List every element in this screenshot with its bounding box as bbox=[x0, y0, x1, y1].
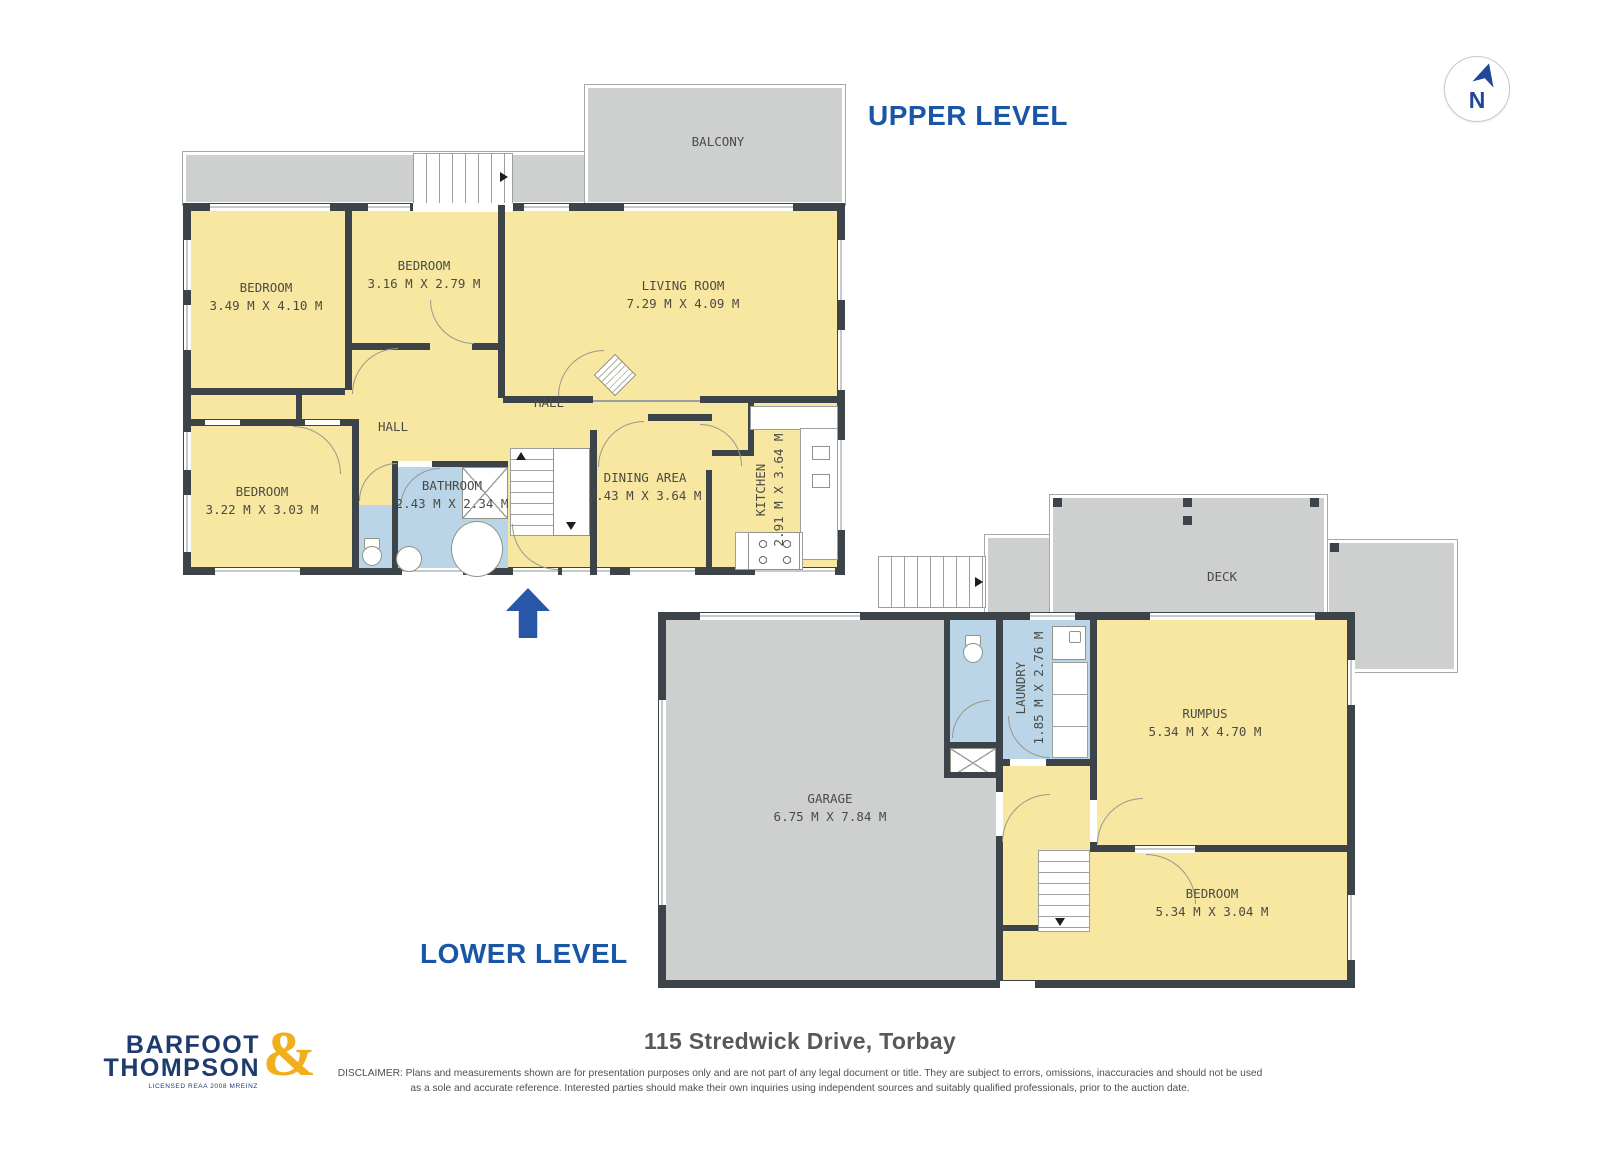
window bbox=[184, 305, 191, 350]
window bbox=[1348, 660, 1355, 705]
window bbox=[524, 204, 569, 211]
kitchen-sink bbox=[812, 446, 830, 460]
window bbox=[184, 240, 191, 290]
window bbox=[210, 204, 330, 211]
washing-machine bbox=[1052, 626, 1086, 660]
wall bbox=[944, 742, 1003, 748]
deck-post bbox=[1183, 516, 1192, 525]
door-opening bbox=[1010, 759, 1046, 766]
window bbox=[624, 204, 793, 211]
window bbox=[1030, 613, 1075, 620]
bedroom-lower-level-label: BEDROOM 5.34 M X 3.04 M bbox=[1156, 885, 1269, 921]
wall bbox=[183, 388, 345, 395]
window bbox=[838, 240, 845, 300]
wall bbox=[648, 414, 712, 421]
stairs-down-icon bbox=[1055, 918, 1065, 926]
deck-label: DECK bbox=[1207, 568, 1237, 586]
bedroom-left-label: BEDROOM 3.49 M X 4.10 M bbox=[210, 279, 323, 315]
garage-door bbox=[659, 700, 666, 905]
hall-label: HALL bbox=[534, 394, 564, 412]
lower-level-title: LOWER LEVEL bbox=[420, 938, 628, 970]
door-opening bbox=[1090, 800, 1097, 842]
entry-arrow-icon bbox=[506, 588, 550, 638]
door-opening bbox=[996, 792, 1003, 836]
hall-label: HALL bbox=[378, 418, 408, 436]
wall bbox=[996, 620, 1003, 778]
window bbox=[838, 330, 845, 390]
window bbox=[368, 204, 410, 211]
garage-label: GARAGE 6.75 M X 7.84 M bbox=[774, 790, 887, 826]
deck-stairs bbox=[878, 556, 986, 608]
deck-post bbox=[1330, 543, 1339, 552]
floorplan-page: UPPER LEVEL BALCONY bbox=[0, 0, 1600, 1167]
window bbox=[630, 568, 695, 575]
internal-stairs bbox=[510, 448, 554, 536]
window bbox=[184, 495, 191, 552]
wall bbox=[700, 396, 845, 403]
wall bbox=[498, 205, 505, 398]
closet-door bbox=[305, 420, 340, 425]
window bbox=[1348, 895, 1355, 960]
bathtub bbox=[451, 521, 503, 577]
closet-door bbox=[205, 420, 240, 425]
wall bbox=[352, 419, 359, 575]
wall bbox=[472, 343, 505, 350]
toilet bbox=[963, 635, 983, 663]
bathroom-label: BATHROOM 2.43 M X 2.34 M bbox=[396, 477, 509, 513]
kitchen-sink bbox=[812, 474, 830, 488]
wall bbox=[296, 392, 302, 422]
stairs-direction-icon bbox=[975, 577, 983, 587]
dining-label: DINING AREA 2.43 M X 3.64 M bbox=[589, 469, 702, 505]
living-room-label: LIVING ROOM 7.29 M X 4.09 M bbox=[627, 277, 740, 313]
wall bbox=[944, 772, 1003, 778]
laundry-label: LAUNDRY 1.85 M X 2.76 M bbox=[1012, 632, 1048, 745]
deck-post bbox=[1053, 498, 1062, 507]
wall bbox=[996, 925, 1040, 931]
deck-post bbox=[1183, 498, 1192, 507]
bedroom-lower-label: BEDROOM 3.22 M X 3.03 M bbox=[206, 483, 319, 519]
deck-post bbox=[1310, 498, 1319, 507]
stairs-up-icon bbox=[516, 452, 526, 460]
garage-floor bbox=[944, 778, 996, 980]
opening bbox=[1000, 981, 1035, 988]
upper-level-title: UPPER LEVEL bbox=[868, 100, 1068, 132]
balcony-label: BALCONY bbox=[692, 133, 745, 151]
stairs-down-icon bbox=[566, 522, 576, 530]
kitchen-label: KITCHEN 2.91 M X 3.64 M bbox=[752, 434, 788, 547]
toilet bbox=[362, 538, 382, 566]
disclaimer-text: DISCLAIMER: Plans and measurements shown… bbox=[0, 1066, 1600, 1097]
bedroom-mid-label: BEDROOM 3.16 M X 2.79 M bbox=[368, 257, 481, 293]
laundry-counter bbox=[1052, 662, 1088, 758]
window bbox=[1135, 846, 1195, 853]
kitchen-passthrough bbox=[593, 400, 700, 402]
stairs-direction-icon bbox=[500, 172, 508, 182]
kitchen-counter-top bbox=[750, 406, 838, 430]
property-address: 115 Stredwick Drive, Torbay bbox=[0, 1028, 1600, 1055]
balcony-strip bbox=[183, 152, 588, 205]
window bbox=[700, 613, 860, 620]
balcony-stairs bbox=[413, 153, 513, 205]
window bbox=[215, 568, 300, 575]
window bbox=[562, 568, 610, 575]
compass-north-label: N bbox=[1469, 87, 1486, 114]
wall bbox=[706, 470, 712, 575]
rumpus-label: RUMPUS 5.34 M X 4.70 M bbox=[1149, 705, 1262, 741]
wall bbox=[1090, 845, 1355, 852]
wall bbox=[944, 620, 950, 778]
window bbox=[184, 432, 191, 470]
window bbox=[838, 440, 845, 530]
wall bbox=[345, 205, 352, 390]
bathroom-sink bbox=[396, 546, 422, 572]
compass-needle-icon bbox=[1472, 60, 1499, 87]
compass: N bbox=[1444, 56, 1510, 122]
window bbox=[1150, 613, 1315, 620]
